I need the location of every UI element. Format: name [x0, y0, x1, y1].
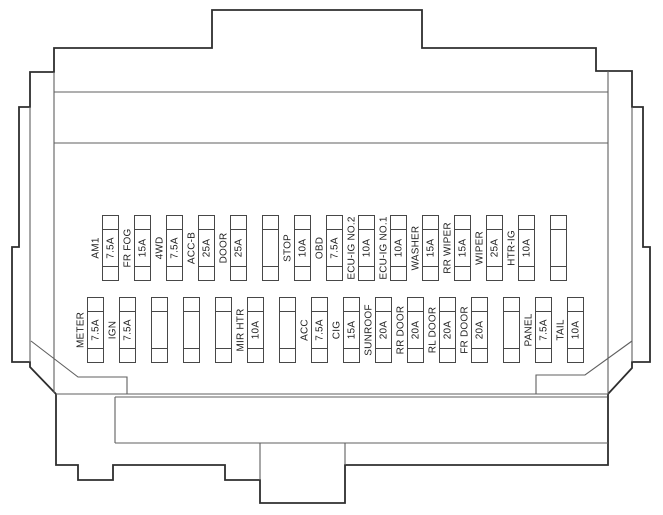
fuse-name-label: TAIL [556, 319, 567, 340]
fuse-amp-label: 7.5A [91, 319, 102, 340]
fuse-top-band [152, 311, 167, 312]
fuse-bottom-band [472, 348, 487, 349]
fuse-bottom-band [536, 348, 551, 349]
fuse-top-band [359, 229, 374, 230]
fuse-amp-label: 20A [443, 321, 454, 339]
fuse-bottom-band [455, 266, 470, 267]
fuse-bottom-band [184, 348, 199, 349]
fuse-amp-label: 20A [411, 321, 422, 339]
fuse-name-label: FR DOOR [460, 306, 471, 354]
fuse-top-band [376, 311, 391, 312]
fuse-bottom-band [344, 348, 359, 349]
fuse-top-band [167, 229, 182, 230]
fuse-bottom-band [135, 266, 150, 267]
fuse-name-label: DOOR [219, 233, 230, 264]
fuse-amp-label: 10A [394, 239, 405, 257]
fuse-name-label: ECU-IG NO.1 [379, 216, 390, 279]
fuse-amp-label: 20A [379, 321, 390, 339]
fuse-amp-label: 10A [571, 321, 582, 339]
fuse-bottom-band [295, 266, 310, 267]
fuse-bottom-band [167, 266, 182, 267]
fuse-amp-label: 25A [490, 239, 501, 257]
fuse-bottom-band [487, 266, 502, 267]
fuse-top-band [551, 229, 566, 230]
fuse-bottom-band [263, 266, 278, 267]
fuse-amp-label: 7.5A [170, 237, 181, 258]
fuse-name-label: ACC-B [187, 232, 198, 264]
fuse-amp-label: 10A [522, 239, 533, 257]
fuse-bottom-band [391, 266, 406, 267]
fuse-top-band [231, 229, 246, 230]
fuse-bottom-band [216, 348, 231, 349]
fuse-bottom-band [359, 266, 374, 267]
fuse-name-label: STOP [283, 234, 294, 262]
fuse-amp-label: 7.5A [539, 319, 550, 340]
fuse-bottom-band [152, 348, 167, 349]
fuse-slot-empty [151, 297, 168, 363]
fuse-amp-label: 7.5A [315, 319, 326, 340]
fuse-top-band [248, 311, 263, 312]
fuse-slot-empty [550, 215, 567, 281]
fuse-name-label: MIR HTR [236, 308, 247, 351]
fuse-name-label: HTR-IG [507, 230, 518, 266]
fuse-top-band [408, 311, 423, 312]
fuse-amp-label: 10A [298, 239, 309, 257]
fuse-top-band [472, 311, 487, 312]
fuse-amp-label: 10A [251, 321, 262, 339]
fuse-top-band [504, 311, 519, 312]
fuse-name-label: IGN [108, 321, 119, 339]
fuse-top-band [536, 311, 551, 312]
fuse-bottom-band [248, 348, 263, 349]
fuse-bottom-band [327, 266, 342, 267]
fuse-bottom-band [551, 266, 566, 267]
fuse-bottom-band [120, 348, 135, 349]
fuse-name-label: AM1 [91, 237, 102, 258]
fuse-top-band [440, 311, 455, 312]
fuse-name-label: METER [76, 312, 87, 348]
fuse-bottom-band [280, 348, 295, 349]
fuse-name-label: WASHER [411, 226, 422, 271]
fuse-top-band [344, 311, 359, 312]
fuse-top-band [184, 311, 199, 312]
fuse-slot-empty [503, 297, 520, 363]
fuse-amp-label: 25A [234, 239, 245, 257]
fuse-name-label: CIG [332, 321, 343, 339]
fuse-bottom-band [504, 348, 519, 349]
fuse-bottom-band [231, 266, 246, 267]
fuse-amp-label: 15A [458, 239, 469, 257]
fuse-top-band [568, 311, 583, 312]
fuse-name-label: RL DOOR [428, 307, 439, 354]
fuse-amp-label: 15A [138, 239, 149, 257]
fuse-top-band [263, 229, 278, 230]
fuse-top-band [135, 229, 150, 230]
fuse-top-band [88, 311, 103, 312]
fuse-top-band [391, 229, 406, 230]
fuse-top-band [312, 311, 327, 312]
fuse-top-band [327, 229, 342, 230]
fuse-bottom-band [199, 266, 214, 267]
fuse-top-band [455, 229, 470, 230]
fuse-top-band [519, 229, 534, 230]
fuse-name-label: WIPER [475, 231, 486, 265]
panel-corner-left [31, 341, 127, 394]
fuse-name-label: ACC [300, 319, 311, 341]
fuse-amp-label: 7.5A [330, 237, 341, 258]
fuse-top-band [295, 229, 310, 230]
fuse-top-band [199, 229, 214, 230]
fuse-bottom-band [440, 348, 455, 349]
fuse-bottom-band [408, 348, 423, 349]
fuse-amp-label: 15A [426, 239, 437, 257]
fuse-amp-label: 15A [347, 321, 358, 339]
fuse-slot-empty [262, 215, 279, 281]
fuse-amp-label: 10A [362, 239, 373, 257]
fuse-name-label: RR DOOR [396, 306, 407, 355]
fuse-slot-empty [279, 297, 296, 363]
fuse-bottom-band [312, 348, 327, 349]
fuse-amp-label: 20A [475, 321, 486, 339]
fuse-top-band [423, 229, 438, 230]
fuse-bottom-band [519, 266, 534, 267]
fuse-bottom-band [88, 348, 103, 349]
fuse-bottom-band [568, 348, 583, 349]
fuse-top-band [487, 229, 502, 230]
fuse-name-label: OBD [315, 237, 326, 259]
fuse-top-band [103, 229, 118, 230]
fuse-name-label: FR FOG [123, 229, 134, 268]
fuse-amp-label: 7.5A [106, 237, 117, 258]
fuse-name-label: ECU-IG NO.2 [347, 216, 358, 279]
fuse-bottom-band [423, 266, 438, 267]
fuse-name-label: SUNROOF [364, 304, 375, 355]
fuse-bottom-band [103, 266, 118, 267]
base-inset-line [115, 397, 608, 443]
fuse-name-label: 4WD [155, 237, 166, 260]
fuse-amp-label: 7.5A [123, 319, 134, 340]
fuse-top-band [216, 311, 231, 312]
fuse-bottom-band [376, 348, 391, 349]
fuse-box-diagram: AM17.5AFR FOG15A4WD7.5AACC-B25ADOOR25AST… [0, 0, 663, 515]
fuse-amp-label: 25A [202, 239, 213, 257]
bottom-tab-inner-lines [260, 443, 345, 480]
fuse-name-label: RR WIPER [443, 222, 454, 274]
fuse-name-label: PANEL [524, 313, 535, 346]
fuse-slot-empty [215, 297, 232, 363]
fuse-top-band [280, 311, 295, 312]
fuse-top-band [120, 311, 135, 312]
fuse-slot-empty [183, 297, 200, 363]
